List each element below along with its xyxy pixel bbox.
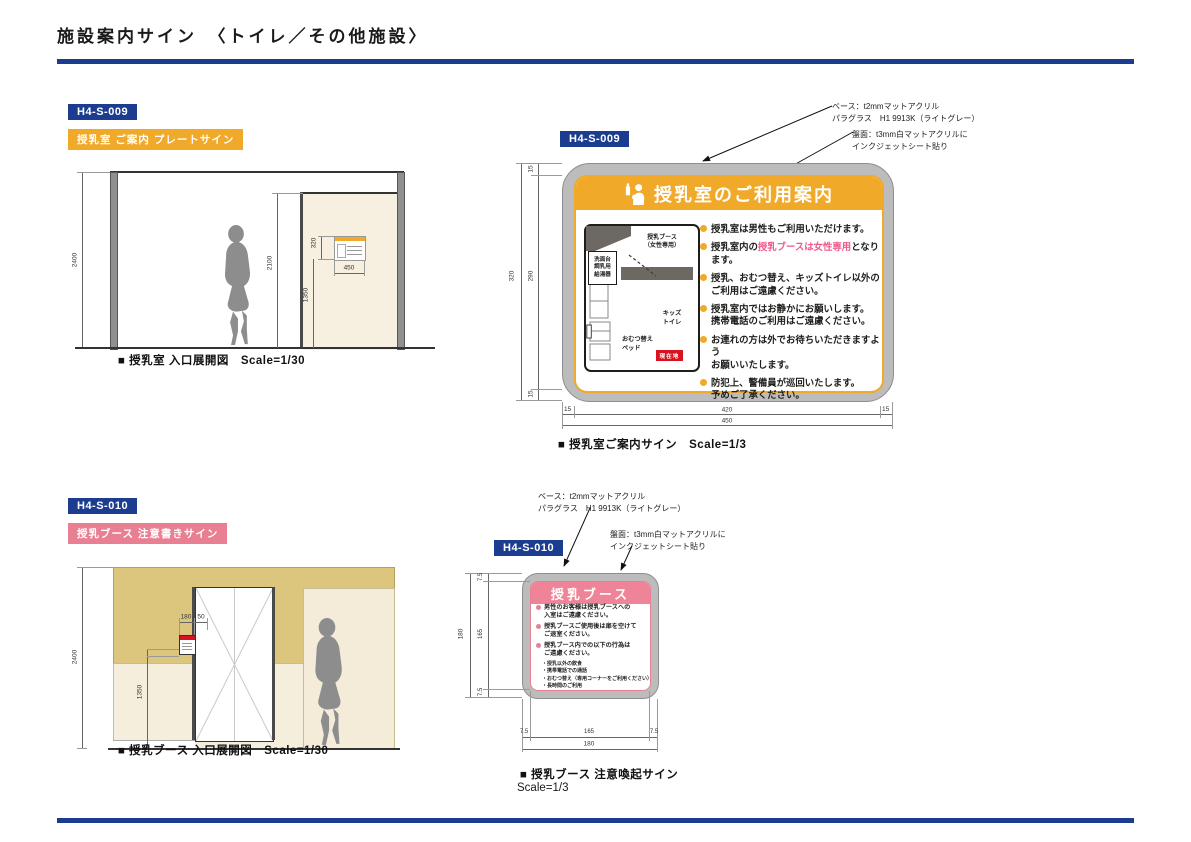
dim-line xyxy=(522,737,657,738)
rule-text: お連れの方は外でお待ちいただきますよう お願いいたします。 xyxy=(711,334,882,371)
dim-ext xyxy=(657,699,658,752)
sign-caption: ■ 授乳ブース 注意喚起サイン xyxy=(520,766,678,782)
rule-text: 授乳ブース内での以下の行為は ご遠慮ください。 xyxy=(544,642,630,658)
dim-label: 7.5 xyxy=(478,573,484,581)
bullet-icon xyxy=(700,336,707,343)
dim-ext xyxy=(880,406,881,418)
door-frame-left xyxy=(192,587,195,740)
sub-rule: ・携帯電話での通話 xyxy=(542,668,646,676)
page: 施設案内サイン 〈トイレ／その他施設〉 H4-S-009 授乳室 ご案内 プレー… xyxy=(0,0,1191,842)
list-item: 授乳室内ではお静かにお願いします。 携帯電話のご利用はご遠慮ください。 xyxy=(700,303,882,328)
dim-label: 15 xyxy=(528,390,535,397)
map-label-sink: 洗面台 調乳用 給湯器 xyxy=(588,251,617,285)
dim-ext xyxy=(207,618,208,630)
dim-label: 180 xyxy=(181,614,192,621)
sign-rules-list: 男性のお客様は授乳ブースへの 入室はご遠慮ください。 授乳ブースご使用後は扉を空… xyxy=(536,604,646,691)
dim-label: 320 xyxy=(509,271,516,282)
map-you-are-here: 現在地 xyxy=(656,350,683,361)
bullet-icon xyxy=(536,643,541,648)
bullet-icon xyxy=(700,274,707,281)
dim-line xyxy=(321,236,322,259)
dim-ext xyxy=(892,402,893,429)
dim-ext xyxy=(562,402,563,429)
person-silhouette xyxy=(210,225,262,348)
mini-text-line xyxy=(182,649,192,650)
mini-plate-sign xyxy=(334,236,366,261)
dim-ext xyxy=(483,689,530,690)
sign-header: 授乳ブース xyxy=(531,582,650,604)
dim-line xyxy=(82,172,83,348)
page-title: 施設案内サイン 〈トイレ／その他施設〉 xyxy=(57,22,429,47)
dim-ext xyxy=(465,573,522,574)
rule-text: 授乳室は男性もご利用いただけます。 xyxy=(711,223,869,235)
elevation-caption: ■ 授乳室 入口展開図 Scale=1/30 xyxy=(118,352,305,368)
list-item: 授乳室内の授乳ブースは女性専用となります。 xyxy=(700,241,882,266)
dim-line xyxy=(470,573,471,697)
dim-label: 15 xyxy=(564,406,571,413)
dim-label: 165 xyxy=(584,729,594,735)
dim-line xyxy=(488,573,489,697)
dim-label: 7.5 xyxy=(520,729,528,735)
dim-line xyxy=(277,193,278,348)
mini-text-line xyxy=(347,246,362,247)
dim-ext xyxy=(77,567,113,568)
dim-line xyxy=(562,414,892,415)
mini-sign-header xyxy=(180,636,195,640)
rule-text: 防犯上、警備員が巡回いたします。 予めご了承ください。 xyxy=(711,377,860,402)
bullet-icon xyxy=(700,243,707,250)
dim-label: 450 xyxy=(722,418,733,425)
dim-label: 165 xyxy=(478,629,484,639)
floor-map: 授乳ブース （女性専用） 洗面台 調乳用 給湯器 キッズ トイレ おむつ替え ベ… xyxy=(584,224,700,372)
nursing-mother-icon xyxy=(624,182,646,206)
sign-header: 授乳室のご利用案内 xyxy=(576,177,882,210)
dim-ext xyxy=(77,748,87,749)
list-item: 授乳ブース内での以下の行為は ご遠慮ください。 xyxy=(536,642,646,658)
sign-title: 授乳ブース xyxy=(551,584,630,603)
dim-ext xyxy=(516,400,562,401)
header-rule xyxy=(57,59,1134,64)
dim-label: 15 xyxy=(882,406,889,413)
sign-type-tag: 授乳室 ご案内 プレートサイン xyxy=(68,129,243,150)
dim-label: 2400 xyxy=(72,253,79,267)
bullet-icon xyxy=(700,225,707,232)
dim-ext xyxy=(531,175,562,176)
rule-text-highlight: 授乳ブースは女性専用 xyxy=(758,241,851,252)
dim-line xyxy=(179,622,207,623)
dim-line xyxy=(522,749,657,750)
dim-label: 1350 xyxy=(303,288,310,302)
dim-ext xyxy=(465,697,522,698)
elevation-caption: ■ 授乳ブース 入口展開図 Scale=1/30 xyxy=(118,742,328,758)
dim-label: 420 xyxy=(722,407,733,414)
list-item: 授乳ブースご使用後は扉を空けて ご退室ください。 xyxy=(536,623,646,639)
sign-code-badge: H4-S-009 xyxy=(560,131,629,147)
list-item: 授乳室は男性もご利用いただけます。 xyxy=(700,223,882,235)
dim-ext xyxy=(522,699,523,752)
list-item: 授乳、おむつ替え、キッズトイレ以外の ご利用はご遠慮ください。 xyxy=(700,272,882,297)
dim-ext xyxy=(179,618,180,635)
sign-caption: ■ 授乳室ご案内サイン Scale=1/3 xyxy=(558,436,746,452)
dim-ext xyxy=(574,406,575,418)
dim-line xyxy=(82,567,83,748)
mini-text-line xyxy=(182,646,192,647)
mini-text-line xyxy=(182,643,192,644)
wall-top-line xyxy=(110,171,404,173)
dim-label: 180 xyxy=(458,629,465,640)
door-frame-right xyxy=(272,587,275,740)
mini-text-line xyxy=(347,250,362,251)
dim-label: 50 xyxy=(197,614,204,621)
dim-ext xyxy=(318,236,334,237)
dim-ext xyxy=(483,581,530,582)
sign-code-badge: H4-S-010 xyxy=(68,498,137,514)
door xyxy=(195,587,274,742)
map-label-booth: 授乳ブース （女性専用） xyxy=(634,234,690,251)
sign-title: 授乳室のご利用案内 xyxy=(654,181,834,207)
dim-line xyxy=(521,163,522,400)
dim-ext xyxy=(194,618,195,635)
dim-label: 15 xyxy=(528,165,535,172)
dim-line xyxy=(147,650,148,748)
dim-ext xyxy=(147,649,179,650)
sub-rule: ・授乳以外の飲食 xyxy=(542,661,646,669)
dim-ext xyxy=(272,193,303,194)
footer-rule xyxy=(57,818,1134,823)
dim-ext xyxy=(334,261,335,276)
rule-text: 授乳室内の授乳ブースは女性専用となります。 xyxy=(711,241,882,266)
dim-label: 290 xyxy=(528,271,535,282)
dim-label: 2400 xyxy=(72,650,79,664)
bullet-icon xyxy=(536,605,541,610)
dim-ext xyxy=(530,691,531,741)
dim-label: 7.5 xyxy=(650,729,658,735)
dim-line xyxy=(562,425,892,426)
bullet-icon xyxy=(700,379,707,386)
sign-rules-list: 授乳室は男性もご利用いただけます。 授乳室内の授乳ブースは女性専用となります。 … xyxy=(700,223,882,408)
sign-caption-scale: Scale=1/3 xyxy=(517,782,568,794)
rule-text: 授乳、おむつ替え、キッズトイレ以外の ご利用はご遠慮ください。 xyxy=(711,272,880,297)
list-item: 男性のお客様は授乳ブースへの 入室はご遠慮ください。 xyxy=(536,604,646,620)
rule-text-pre: 授乳室内の xyxy=(711,241,758,252)
mini-map xyxy=(337,244,346,258)
person-silhouette xyxy=(300,618,354,748)
dim-line xyxy=(334,273,364,274)
dim-ext xyxy=(516,163,562,164)
dim-label: 450 xyxy=(344,265,355,272)
door-frame xyxy=(300,192,303,348)
sign-code-badge: H4-S-009 xyxy=(68,104,137,120)
dim-line xyxy=(538,163,539,400)
right-column xyxy=(397,172,405,350)
mini-text-line xyxy=(347,254,362,255)
dim-label: 180 xyxy=(584,741,595,748)
dim-line xyxy=(313,259,314,348)
dim-label: 2100 xyxy=(267,256,274,270)
left-column xyxy=(110,172,118,350)
dim-ext xyxy=(364,261,365,276)
mini-notice-sign xyxy=(179,635,196,655)
rule-text: 授乳室内ではお静かにお願いします。 携帯電話のご利用はご遠慮ください。 xyxy=(711,303,870,328)
leader-lines xyxy=(550,500,660,575)
dim-label: 1350 xyxy=(137,685,144,699)
sub-rule: ・長時間のご利用 xyxy=(542,683,646,691)
dim-ext xyxy=(531,389,562,390)
rule-text: 男性のお客様は授乳ブースへの 入室はご遠慮ください。 xyxy=(544,604,630,620)
bullet-icon xyxy=(700,305,707,312)
dim-ext xyxy=(147,656,179,657)
mini-sign-header xyxy=(335,237,365,241)
sign-type-tag: 授乳ブース 注意書きサイン xyxy=(68,523,227,544)
dim-label: 7.5 xyxy=(478,688,484,696)
door-x-pattern xyxy=(196,588,273,741)
dim-label: 320 xyxy=(311,238,318,249)
map-label-kids-toilet: キッズ トイレ xyxy=(654,310,690,328)
bullet-icon xyxy=(536,624,541,629)
list-item: お連れの方は外でお待ちいただきますよう お願いいたします。 xyxy=(700,334,882,371)
sub-rule: ・おむつ替え（専用コーナーをご利用ください） xyxy=(542,676,646,684)
dim-ext xyxy=(77,172,110,173)
list-item: 防犯上、警備員が巡回いたします。 予めご了承ください。 xyxy=(700,377,882,402)
rule-text: 授乳ブースご使用後は扉を空けて ご退室ください。 xyxy=(544,623,637,639)
dim-ext xyxy=(318,259,334,260)
